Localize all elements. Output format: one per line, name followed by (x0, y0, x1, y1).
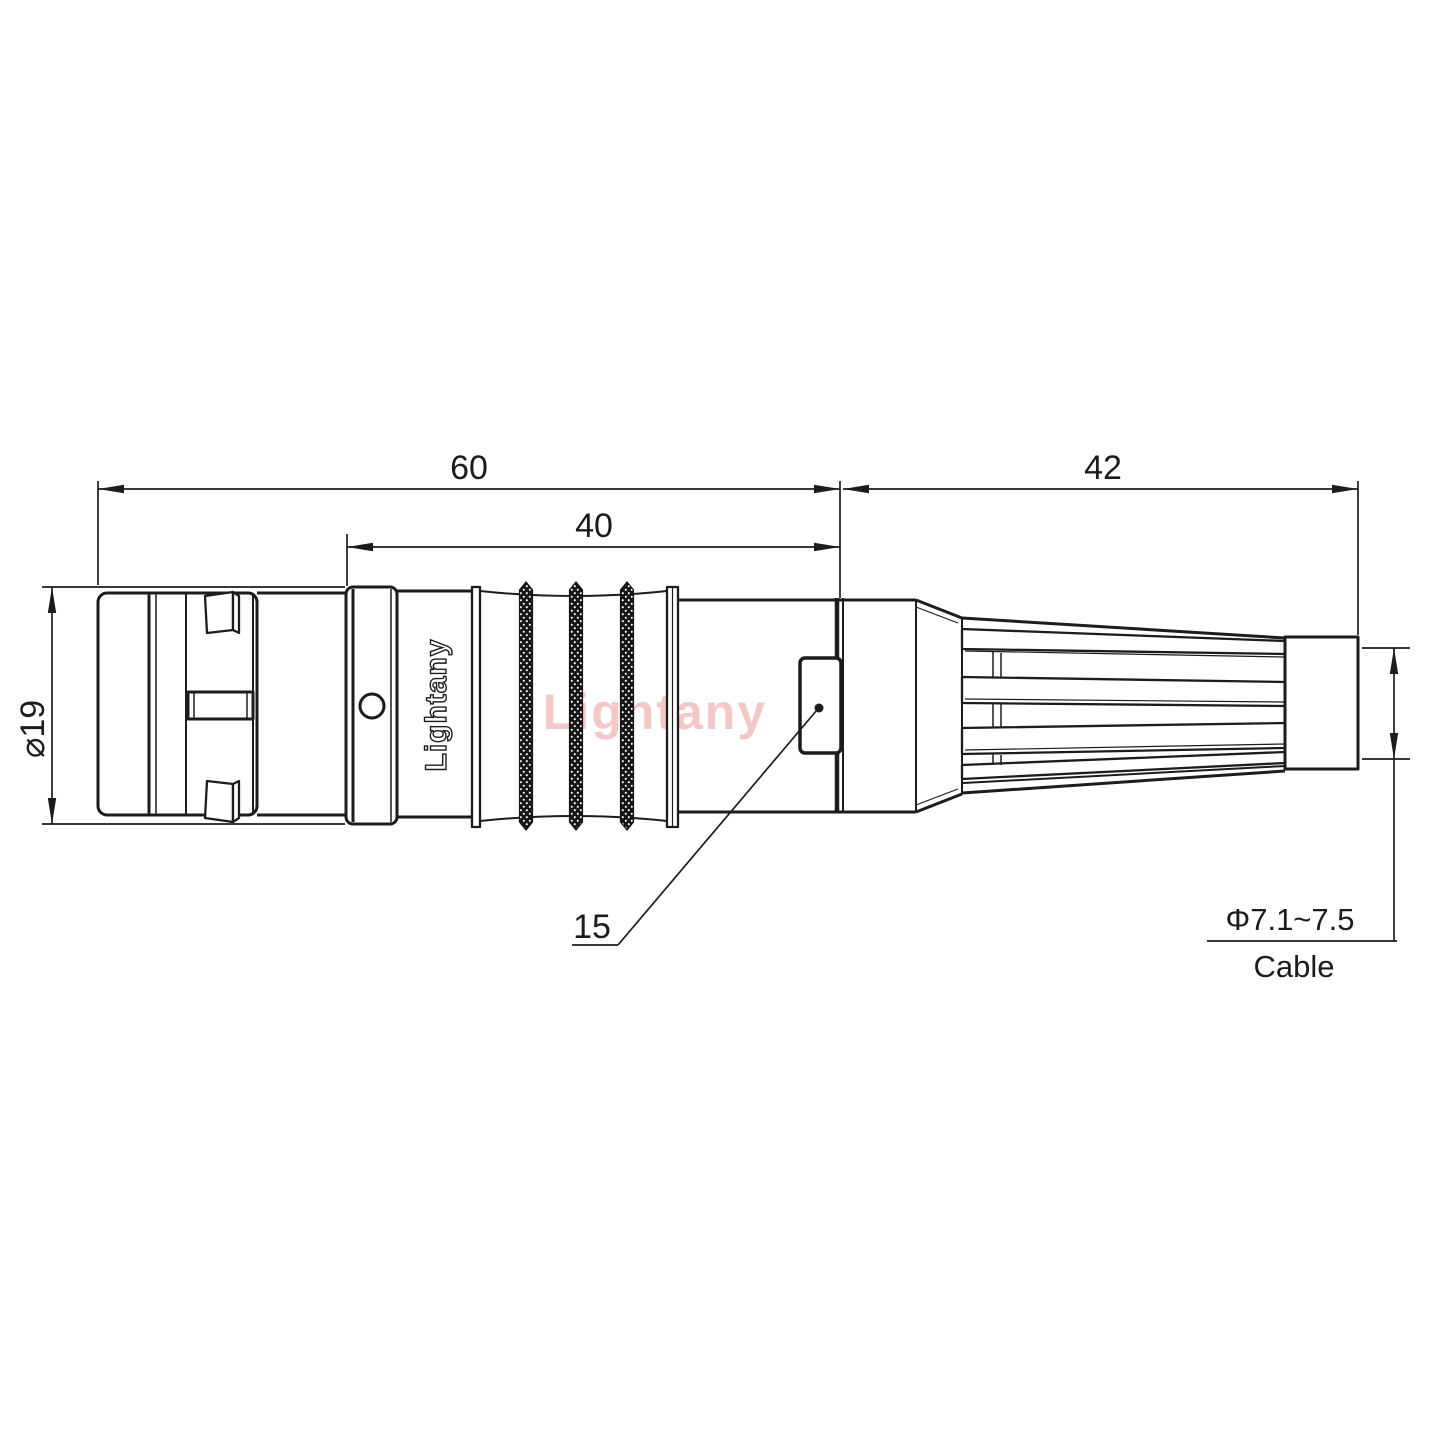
vent-hole (360, 694, 384, 718)
technical-drawing: Lightany Lightany (0, 0, 1440, 1440)
bayonet-key-top (205, 592, 239, 633)
dim-label-cable-caption: Cable (1254, 949, 1335, 984)
dim-label-rear: 42 (1084, 449, 1122, 487)
latch-slot (188, 692, 253, 719)
cable-end-cap (1285, 637, 1358, 769)
coupling-collar (346, 587, 397, 824)
dim-label-overall: 60 (450, 449, 488, 487)
dim-label-cable-diameter: Φ7.1~7.5 (1225, 902, 1354, 937)
knurl-band-3 (621, 582, 634, 830)
dim-label-front-diameter: ⌀19 (14, 700, 52, 758)
knurl-band-2 (570, 582, 583, 830)
dim-label-tab-ref: 15 (573, 908, 611, 946)
dim-label-mid: 40 (575, 507, 613, 545)
knurl-band-1 (520, 582, 533, 830)
bayonet-key-bottom (205, 781, 239, 822)
knurl-left-rim (472, 587, 480, 827)
engraving-text: Lightany (420, 639, 453, 772)
